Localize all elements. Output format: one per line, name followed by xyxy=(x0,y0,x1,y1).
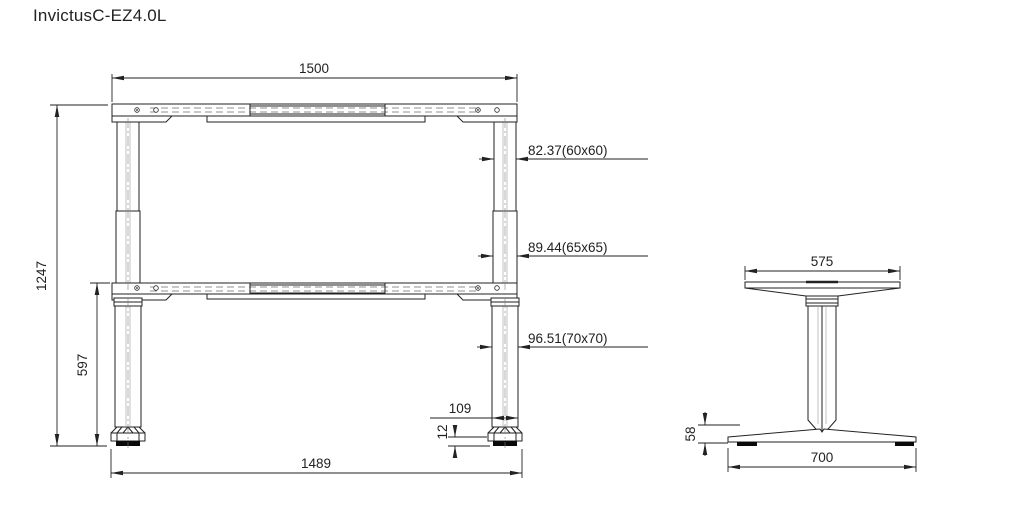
dim-label-foot-cap-width: 109 xyxy=(449,401,472,416)
dim-label-frame-width: 1500 xyxy=(299,61,329,76)
dim-label-foot-span: 1489 xyxy=(301,456,331,471)
dim-label-foot-pad-height: 12 xyxy=(435,424,450,439)
side-column-collar xyxy=(806,296,838,306)
lower-beam xyxy=(112,283,517,300)
technical-drawing-page: InvictusC-EZ4.0L xyxy=(0,0,1024,518)
dim-foot-pad-height: 12 xyxy=(435,424,490,457)
mounting-hole-center xyxy=(477,287,479,289)
mounting-hole-center xyxy=(477,109,479,111)
dim-label-top-bracket-width: 575 xyxy=(811,254,834,269)
dim-foot-height: 58 xyxy=(683,412,740,456)
mounting-hole xyxy=(495,108,500,113)
top-beam-support-plate xyxy=(207,116,425,122)
side-view: 575 58 700 xyxy=(683,254,916,472)
top-beam xyxy=(112,104,517,122)
dim-label-foot-depth: 700 xyxy=(811,450,834,465)
dim-foot-span: 1489 xyxy=(111,449,522,478)
dim-frame-width: 1500 xyxy=(112,61,517,102)
top-beam-right-bracket xyxy=(457,116,517,122)
mounting-hole xyxy=(154,108,159,113)
side-bracket-taper xyxy=(745,288,900,296)
mounting-hole-center xyxy=(136,109,138,111)
mounting-hole xyxy=(154,286,159,291)
dim-lower-column-height: 597 xyxy=(75,283,110,446)
side-column xyxy=(806,296,838,436)
top-beam-left-bracket xyxy=(112,116,172,122)
dim-label-middle-column-profile: 89.44(65x65) xyxy=(528,240,608,255)
side-foot-pad-rear xyxy=(895,442,914,446)
front-view: 1500 1247 597 82.37(60x60) xyxy=(34,61,648,478)
dim-foot-depth: 700 xyxy=(728,448,916,472)
mounting-hole xyxy=(495,286,500,291)
side-top-bracket xyxy=(745,282,900,296)
drawing-canvas: 1500 1247 597 82.37(60x60) xyxy=(0,0,1024,518)
dim-label-lower-column-profile: 96.51(70x70) xyxy=(528,331,608,346)
dim-label-upper-column-profile: 82.37(60x60) xyxy=(528,143,608,158)
dim-top-bracket-width: 575 xyxy=(745,254,900,280)
dim-label-lower-column-height: 597 xyxy=(75,354,90,377)
mounting-hole-center xyxy=(136,287,138,289)
side-foot xyxy=(728,429,916,446)
side-foot-pad-front xyxy=(737,442,757,446)
dim-label-overall-height: 1247 xyxy=(34,261,49,291)
lower-beam-support-plate xyxy=(207,294,425,299)
dim-label-foot-height: 58 xyxy=(683,426,698,441)
